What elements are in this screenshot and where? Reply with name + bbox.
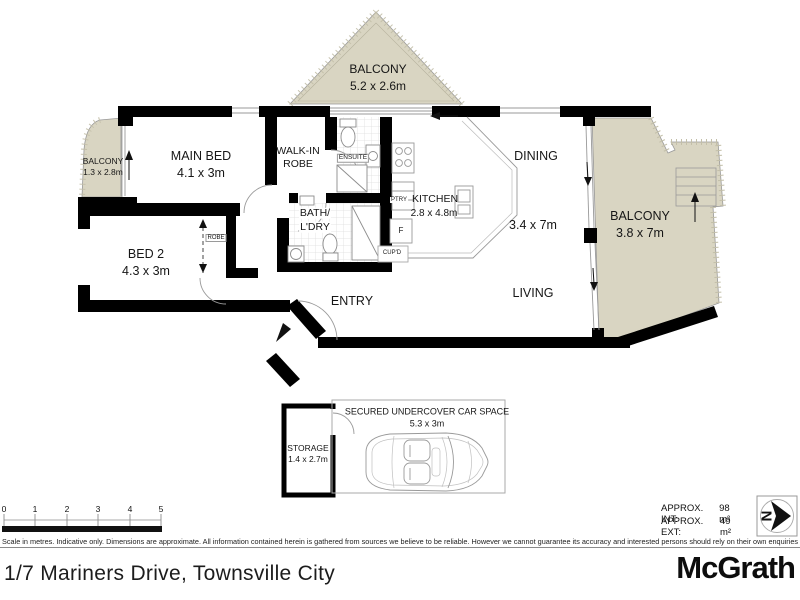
main-bed-dims: 4.1 x 3m bbox=[177, 167, 225, 180]
bath-ldry-label-1: BATH/ bbox=[299, 208, 331, 219]
balcony-right-dims: 3.8 x 7m bbox=[616, 227, 664, 240]
scale-bar bbox=[2, 514, 162, 532]
robe-label: ROBE bbox=[205, 234, 226, 242]
balcony-right-label: BALCONY bbox=[610, 210, 670, 223]
kitchen-fixtures bbox=[378, 117, 517, 262]
walk-in-robe-label-1: WALK-IN bbox=[276, 146, 319, 157]
scale-tick-0: 0 bbox=[2, 504, 7, 514]
car-space-label: SECURED UNDERCOVER CAR SPACE bbox=[345, 408, 509, 417]
north-letter: N bbox=[758, 511, 775, 522]
storage-dims: 1.4 x 2.7m bbox=[288, 455, 328, 464]
divider-line bbox=[0, 547, 800, 548]
bed2-dims: 4.3 x 3m bbox=[122, 265, 170, 278]
cupboard-label: CUP'D bbox=[382, 250, 402, 256]
kitchen-dims: 2.8 x 4.8m bbox=[411, 209, 458, 219]
entry-label: ENTRY bbox=[331, 295, 373, 308]
disclaimer-text: Scale in metres. Indicative only. Dimens… bbox=[2, 537, 798, 546]
bath-ldry-label-2: L'DRY bbox=[299, 222, 331, 233]
mcgrath-logo: McGrath bbox=[676, 550, 795, 586]
balcony-top-dims: 5.2 x 2.6m bbox=[350, 80, 406, 92]
scale-tick-3: 3 bbox=[96, 504, 101, 514]
car-space-dims: 5.3 x 3m bbox=[410, 420, 445, 429]
living-label: LIVING bbox=[513, 287, 554, 300]
scale-tick-1: 1 bbox=[33, 504, 38, 514]
storage-label: STORAGE bbox=[287, 444, 328, 453]
balcony-left-dims: 1.3 x 2.8m bbox=[83, 168, 123, 177]
main-bed-label: MAIN BED bbox=[171, 150, 231, 163]
approx-ext-value: 49 m² bbox=[720, 516, 742, 538]
kitchen-label: KITCHEN bbox=[412, 194, 458, 205]
pantry-label: PTRY bbox=[390, 197, 408, 203]
living-dims: 3.4 x 7m bbox=[509, 219, 557, 232]
address-text: 1/7 Mariners Drive, Townsville City bbox=[4, 562, 335, 586]
scale-tick-5: 5 bbox=[159, 504, 164, 514]
bed2-label: BED 2 bbox=[128, 248, 164, 261]
robe-slider bbox=[199, 219, 207, 274]
scale-tick-4: 4 bbox=[128, 504, 133, 514]
ensuite-label: ENSUITE bbox=[337, 154, 369, 163]
balcony-top-label: BALCONY bbox=[349, 63, 406, 75]
walk-in-robe-label-2: ROBE bbox=[283, 159, 313, 170]
approx-areas: APPROX. INT: 98 m² APPROX. EXT: 49 m² bbox=[661, 507, 742, 533]
fridge-label: F bbox=[399, 227, 404, 235]
car-illustration bbox=[366, 433, 488, 491]
floorplan-page: BALCONY 5.2 x 2.6m BALCONY 1.3 x 2.8m MA… bbox=[0, 0, 800, 600]
balcony-left-label: BALCONY bbox=[83, 157, 124, 166]
scale-tick-2: 2 bbox=[65, 504, 70, 514]
dining-label: DINING bbox=[514, 150, 558, 163]
approx-ext-label: APPROX. EXT: bbox=[661, 516, 720, 538]
